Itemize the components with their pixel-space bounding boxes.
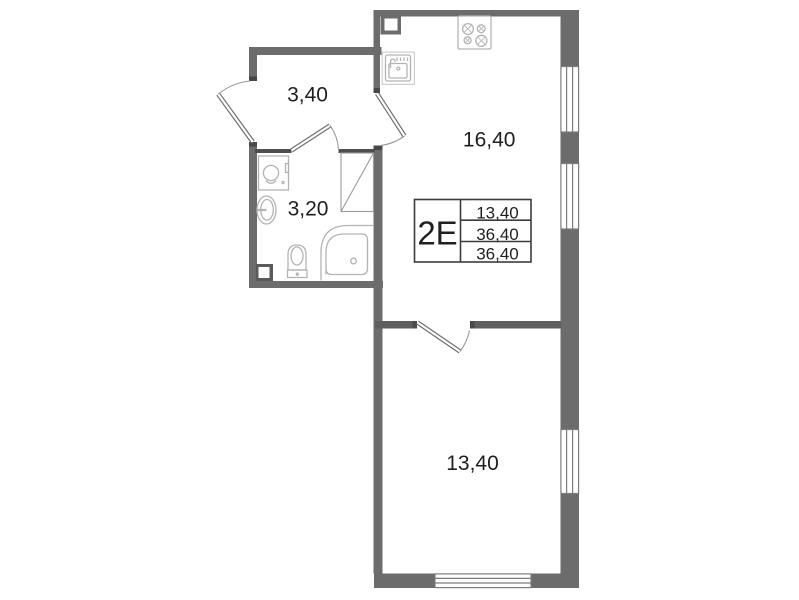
svg-text:13,40: 13,40 — [476, 204, 519, 223]
svg-text:36,40: 36,40 — [476, 225, 519, 244]
svg-text:3,40: 3,40 — [287, 84, 328, 107]
svg-text:36,40: 36,40 — [476, 245, 519, 264]
svg-text:2E: 2E — [417, 215, 457, 252]
svg-text:13,40: 13,40 — [446, 452, 499, 475]
svg-text:16,40: 16,40 — [463, 129, 516, 152]
svg-text:3,20: 3,20 — [288, 198, 329, 221]
